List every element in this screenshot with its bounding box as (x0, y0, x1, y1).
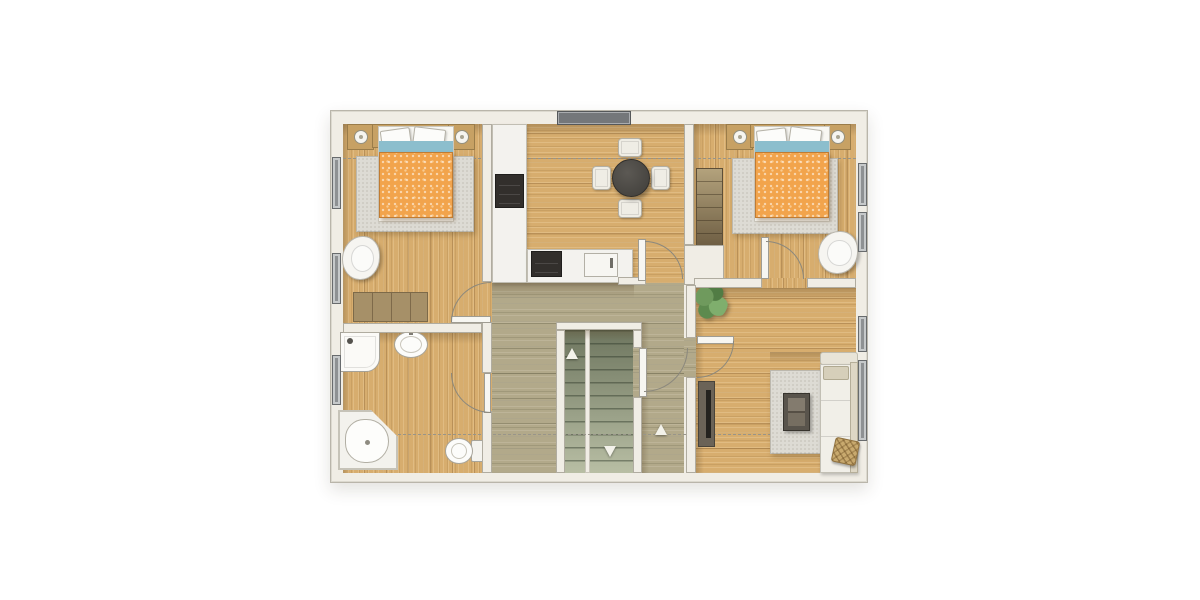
bathroom-basin (394, 331, 428, 358)
window-left-bathroom (332, 355, 341, 405)
floor-plan-canvas (0, 0, 1200, 600)
bedroom-left-duvet (379, 152, 453, 218)
wall-hall-living-lower (686, 377, 696, 473)
window-right-bedroom-a (858, 163, 867, 206)
stair-arrow-down (604, 446, 616, 457)
hallway-floor-right (642, 322, 684, 473)
wall-bathroom-hall-lower (482, 411, 492, 473)
hallway-floor-top (492, 283, 684, 322)
stair-arrow-up (566, 348, 578, 359)
bedroom-right-armchair (818, 231, 858, 274)
kitchen-appliance (495, 174, 524, 208)
coffee-table (783, 393, 810, 431)
bedroom-left-lamp-a (354, 130, 368, 144)
stairwell-wall-right-b (633, 397, 642, 473)
shower (340, 332, 380, 372)
dining-chair-bottom (618, 199, 642, 218)
bedroom-left-lamp-b (455, 130, 469, 144)
wall-bedroomleft-bathroom (343, 323, 482, 333)
window-left-bedroom-a (332, 157, 341, 209)
dining-chair-top (618, 138, 642, 157)
window-right-living-b (858, 360, 867, 441)
window-left-bedroom-b (332, 253, 341, 304)
wall-kitchen-bedroomright (684, 124, 694, 245)
shower-drain (347, 338, 353, 344)
stairwell-wall-top (556, 322, 642, 330)
wall-bedroomleft-hall-upper (482, 124, 492, 282)
tv-screen-line (706, 390, 711, 438)
corner-bathtub-basin (345, 419, 389, 463)
bedroom-left-armchair (342, 236, 380, 280)
bedroom-right-lamp-b (831, 130, 845, 144)
kitchen-sink (584, 253, 618, 277)
bedroom-right-lamp-a (733, 130, 747, 144)
bedroom-left-dresser (353, 292, 428, 322)
dining-table (612, 159, 650, 197)
hallway-arrow-up (655, 424, 667, 435)
window-top-kitchen (557, 111, 631, 125)
bedroom-right-duvet (755, 152, 829, 218)
stair-divider (585, 330, 590, 473)
hallway-floor-left (492, 322, 556, 473)
kitchen-cooktop (531, 251, 562, 277)
sofa-chaise-cushion (823, 366, 849, 380)
wall-hall-living-upper (686, 285, 696, 338)
stairwell-wall-right-a (633, 330, 642, 348)
sofa-deco-pillow (831, 437, 861, 467)
wall-bedroomright-living-b (807, 278, 856, 288)
window-right-living-a (858, 316, 867, 352)
bedroom-right-wardrobe (696, 168, 723, 246)
window-right-bedroom-b (858, 212, 867, 252)
hallway-plant (694, 284, 728, 320)
door-gap-floor-bedroom-right (762, 278, 807, 288)
wall-bedroomright-living-a (694, 278, 762, 288)
dining-chair-right (651, 166, 670, 190)
wall-bedroomleft-hall-mid (482, 322, 492, 373)
dining-chair-left (592, 166, 611, 190)
stairwell-wall-left (556, 330, 565, 473)
toilet-bowl (445, 438, 473, 464)
